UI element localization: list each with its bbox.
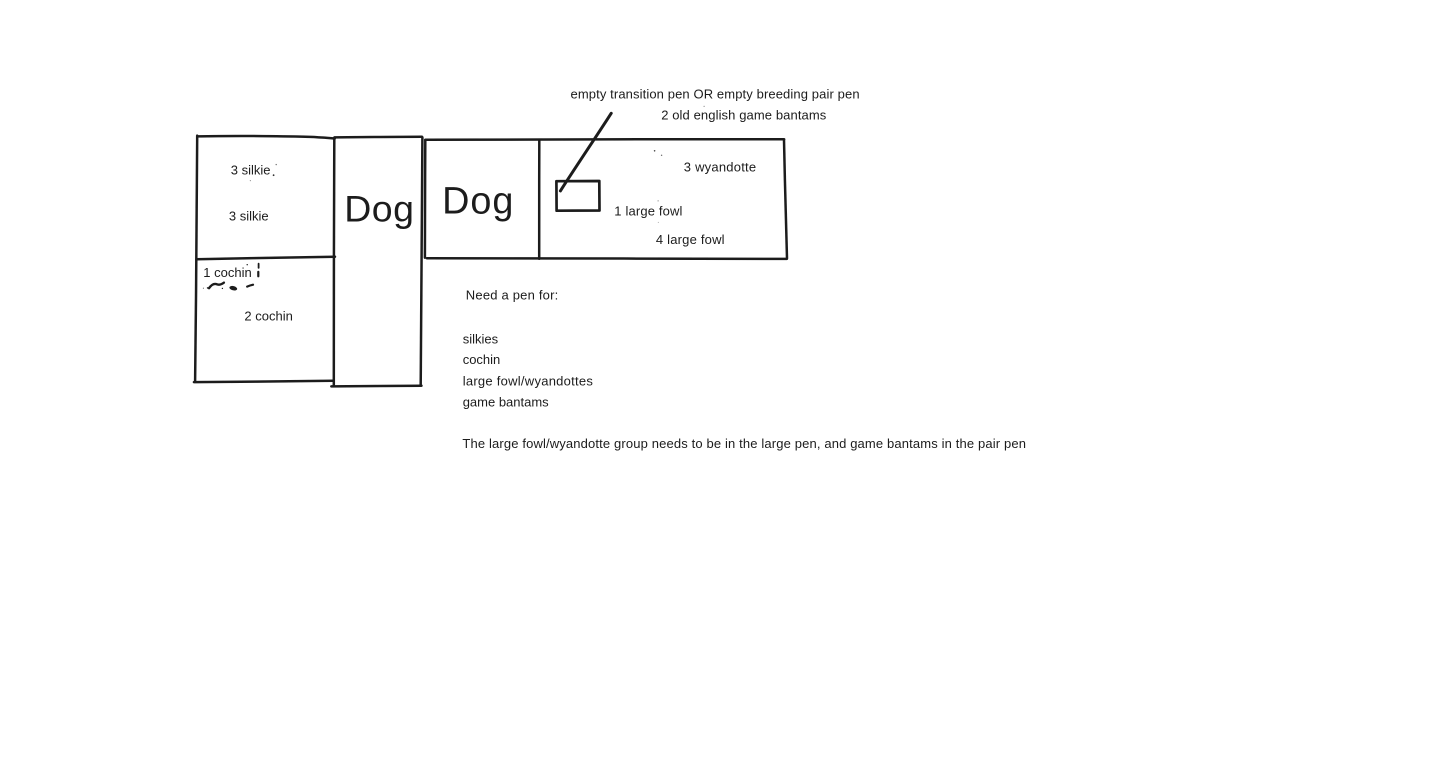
svg-text:1 large fowl: 1 large fowl xyxy=(614,203,682,218)
svg-text:large fowl/wyandottes: large fowl/wyandottes xyxy=(463,373,594,388)
svg-text:2 cochin: 2 cochin xyxy=(244,309,292,324)
svg-text:3 wyandotte: 3 wyandotte xyxy=(684,160,757,175)
svg-text:4 large fowl: 4 large fowl xyxy=(656,232,725,247)
svg-text:Dog: Dog xyxy=(344,188,414,230)
svg-text:game bantams: game bantams xyxy=(463,395,549,410)
svg-text:1 cochin: 1 cochin xyxy=(203,265,251,280)
svg-text:3 silkie: 3 silkie xyxy=(229,208,269,223)
svg-text:3 silkie: 3 silkie xyxy=(231,162,271,177)
svg-text:2 old english game bantams: 2 old english game bantams xyxy=(661,108,827,123)
svg-text:The large fowl/wyandotte group: The large fowl/wyandotte group needs to … xyxy=(462,436,1026,451)
svg-text:Need a pen for:: Need a pen for: xyxy=(466,288,559,303)
svg-text:cochin: cochin xyxy=(463,352,501,367)
svg-text:silkies: silkies xyxy=(463,332,499,347)
svg-text:empty transition pen OR empty: empty transition pen OR empty breeding p… xyxy=(571,86,860,101)
svg-text:Dog: Dog xyxy=(442,180,514,222)
